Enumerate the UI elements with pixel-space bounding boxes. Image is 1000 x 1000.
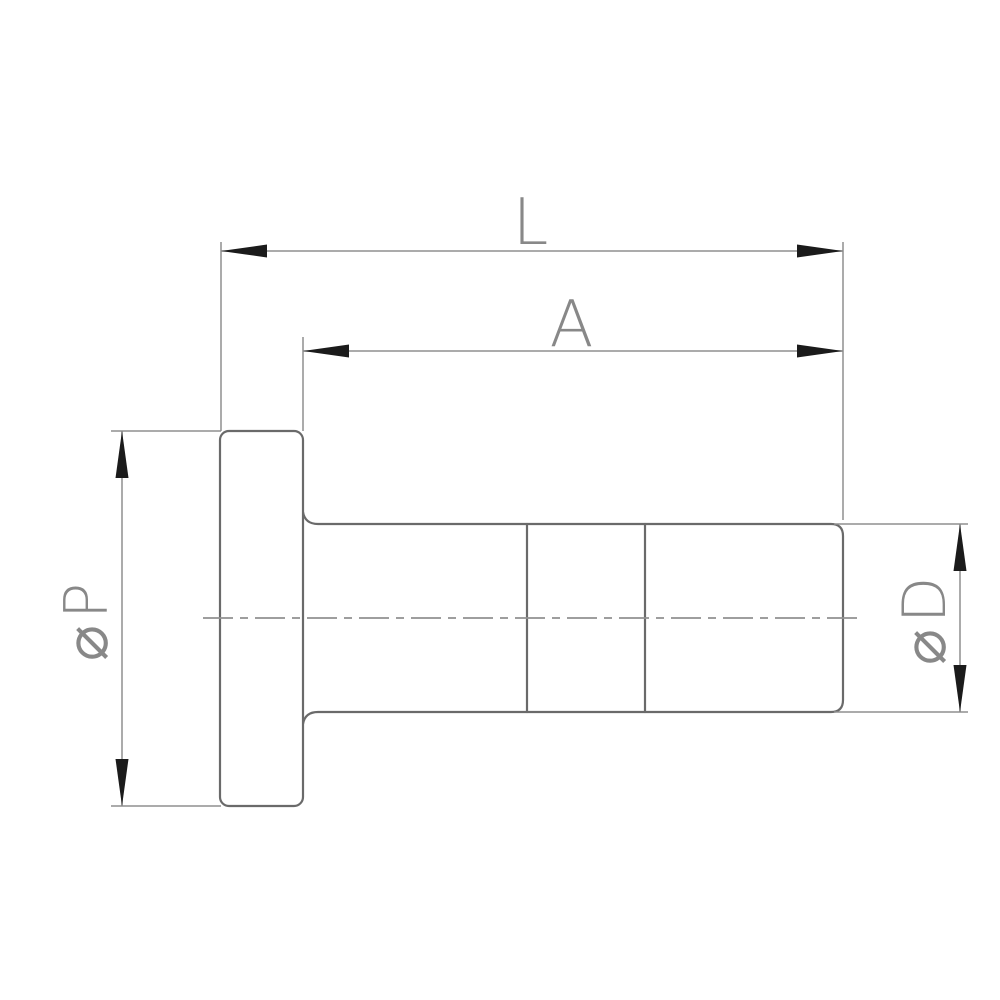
label-shaft-length: A	[550, 288, 595, 362]
label-overall-length: L	[513, 186, 550, 260]
technical-drawing-canvas: L A ⌀P ⌀D	[0, 0, 1000, 1000]
label-shaft-diameter: ⌀D	[890, 571, 960, 665]
drawing-background	[0, 0, 1000, 1000]
technical-drawing-page: L A ⌀P ⌀D	[0, 0, 1000, 1000]
label-flange-diameter: ⌀P	[52, 577, 122, 661]
